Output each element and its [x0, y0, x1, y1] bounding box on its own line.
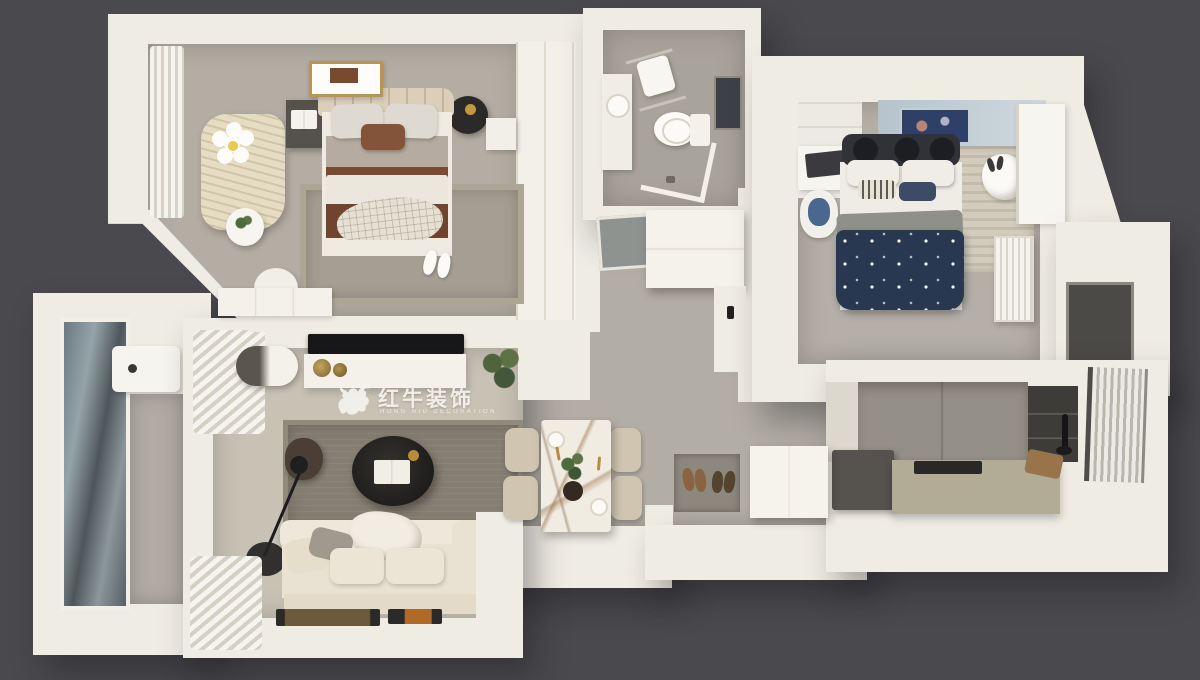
master-curtains	[150, 46, 184, 218]
bathroom-sink	[606, 94, 630, 118]
floor-plan-render: ® 红牛装饰 HONG NIU DECORATION	[0, 0, 1200, 680]
floor-lamp-head	[290, 456, 308, 474]
open-book	[291, 110, 317, 129]
tv-wall-step	[518, 320, 590, 400]
wall-tray	[276, 609, 380, 626]
dining-chair	[505, 428, 539, 472]
living-curtains-bottom	[190, 556, 262, 650]
cabinet-handle	[727, 306, 734, 319]
sofa-cushion	[330, 548, 384, 584]
balcony-floor	[130, 394, 186, 604]
wall-tray	[388, 609, 442, 624]
hall-shoe-cabinet	[646, 210, 744, 288]
gold-decor-plate	[333, 363, 347, 377]
refrigerator	[832, 450, 894, 510]
dining-chair	[611, 476, 642, 520]
desk-chair-seat	[808, 198, 830, 226]
basin-drain	[128, 364, 137, 373]
brand-name-en: HONG NIU DECORATION	[380, 409, 497, 415]
striped-cushion	[858, 180, 896, 199]
accent-pillow	[361, 124, 405, 150]
sofa-cushion	[386, 548, 444, 584]
open-book	[374, 460, 410, 484]
bathroom-vanity	[602, 74, 632, 170]
faucet-base	[1056, 446, 1072, 455]
bathroom-window	[714, 76, 742, 130]
cooktop	[914, 461, 982, 474]
gold-lamp	[465, 104, 476, 115]
dining-chair	[503, 476, 538, 520]
tv-screen	[308, 334, 464, 354]
gold-bowl	[408, 450, 419, 461]
gold-decor-plate	[313, 359, 331, 377]
shower-glass-enclosure	[640, 130, 716, 203]
radiator	[994, 236, 1034, 322]
centerpiece-plant	[558, 448, 586, 484]
navy-cushion	[899, 182, 936, 201]
living-right-wall	[476, 512, 523, 658]
dining-chair	[610, 428, 641, 472]
master-wardrobe	[516, 42, 576, 320]
laundry-basin	[112, 346, 180, 392]
wall-art-canvas	[330, 68, 358, 83]
dresser	[218, 288, 332, 316]
centerpiece-vase	[563, 481, 583, 501]
round-lamp-table	[448, 96, 488, 134]
side-table-plant	[233, 214, 253, 232]
air-conditioner	[236, 346, 298, 386]
place-setting-plate	[590, 498, 608, 516]
nightstand-right	[486, 118, 516, 150]
floor-drain	[666, 176, 675, 183]
hall-wall-pillar	[714, 286, 746, 372]
daisy-pillow-center	[228, 141, 238, 151]
brand-watermark: ® 红牛装饰 HONG NIU DECORATION	[334, 382, 519, 426]
registered-mark: ®	[365, 382, 371, 391]
navy-star-duvet	[836, 230, 964, 310]
entry-cabinet	[750, 446, 828, 518]
kids-room-door	[1016, 104, 1065, 224]
kitchen-window-blinds	[1084, 367, 1148, 483]
